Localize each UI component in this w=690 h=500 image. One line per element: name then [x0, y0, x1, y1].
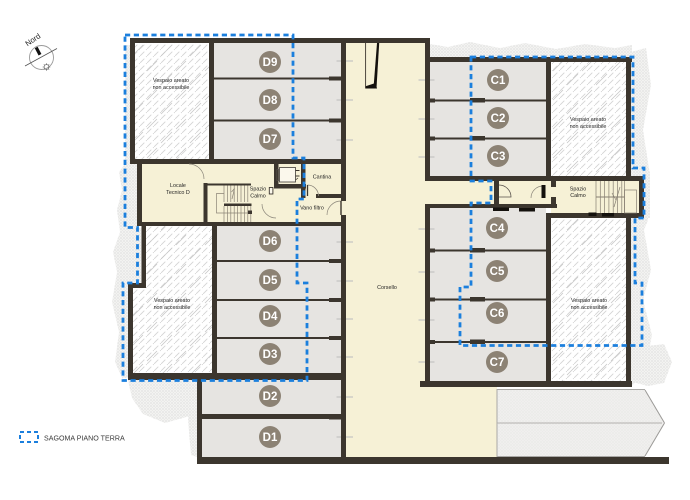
svg-text:D9: D9 [263, 57, 278, 69]
svg-text:Calmo: Calmo [250, 194, 266, 200]
svg-text:Cantina: Cantina [313, 175, 332, 181]
svg-text:D8: D8 [263, 95, 278, 107]
svg-text:Calmo: Calmo [570, 193, 586, 199]
svg-text:non accessibile: non accessibile [570, 124, 607, 130]
svg-text:D3: D3 [263, 349, 278, 361]
svg-text:C6: C6 [490, 308, 505, 320]
svg-text:C1: C1 [491, 75, 506, 87]
svg-text:C7: C7 [490, 357, 505, 369]
svg-text:Vespaio areato: Vespaio areato [570, 117, 606, 123]
svg-text:C5: C5 [490, 266, 505, 278]
svg-text:D1: D1 [263, 432, 278, 444]
svg-text:C4: C4 [490, 223, 505, 235]
svg-text:C3: C3 [491, 151, 506, 163]
svg-text:Locale: Locale [170, 183, 186, 189]
svg-text:Vano filtro: Vano filtro [300, 206, 324, 212]
svg-text:Spazio: Spazio [570, 187, 586, 193]
svg-text:D2: D2 [263, 391, 278, 403]
svg-text:C2: C2 [491, 113, 506, 125]
svg-text:Spazio: Spazio [250, 187, 266, 193]
svg-text:non accessibile: non accessibile [571, 305, 608, 311]
svg-text:D4: D4 [263, 311, 278, 323]
svg-text:Vespaio areato: Vespaio areato [153, 78, 189, 84]
svg-text:SAGOMA PIANO TERRA: SAGOMA PIANO TERRA [44, 435, 125, 443]
svg-text:non accessibile: non accessibile [153, 85, 190, 91]
svg-text:Vespaio areato: Vespaio areato [571, 298, 607, 304]
svg-text:Corsello: Corsello [377, 285, 397, 291]
svg-text:Vespaio areato: Vespaio areato [154, 298, 190, 304]
svg-text:D6: D6 [263, 236, 278, 248]
svg-text:non accessibile: non accessibile [154, 305, 191, 311]
svg-text:Tecnico D: Tecnico D [166, 190, 190, 196]
svg-text:D7: D7 [263, 134, 278, 146]
svg-text:D5: D5 [263, 275, 278, 287]
